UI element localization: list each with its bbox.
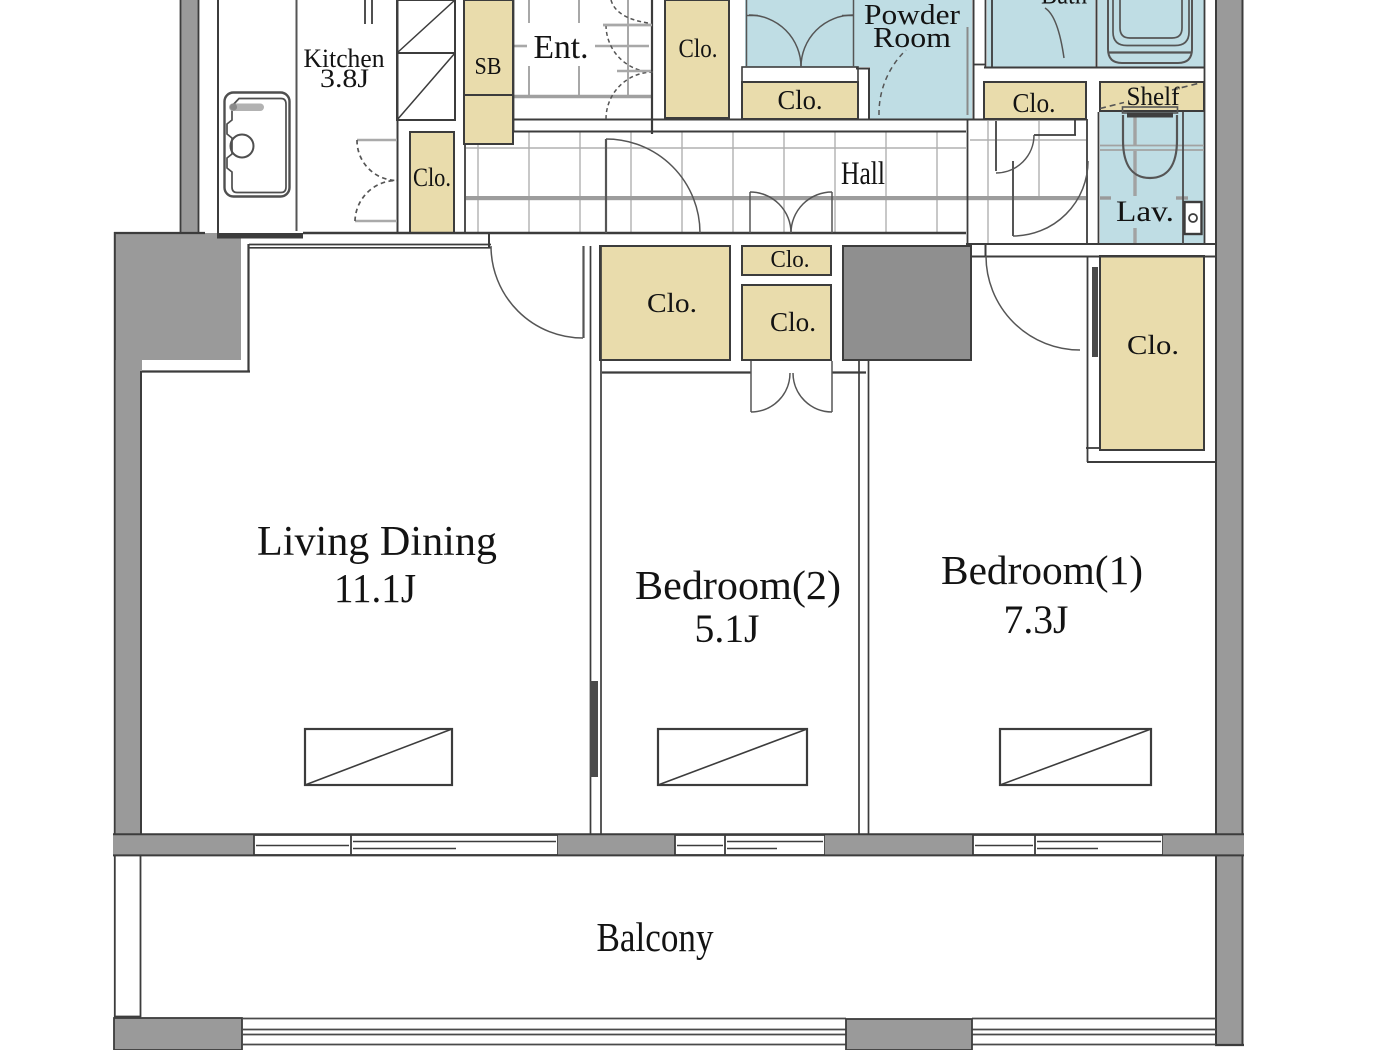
svg-text:Clo.: Clo. [679, 34, 718, 63]
svg-text:Room: Room [873, 23, 951, 54]
svg-text:Clo.: Clo. [647, 288, 697, 318]
svg-text:Clo.: Clo. [770, 307, 816, 337]
svg-text:Bedroom(1): Bedroom(1) [941, 547, 1143, 593]
svg-text:Clo.: Clo. [771, 247, 810, 273]
svg-text:Ent.: Ent. [534, 29, 589, 66]
svg-text:Lav.: Lav. [1116, 195, 1174, 228]
svg-text:Clo.: Clo. [778, 85, 823, 115]
svg-text:11.1J: 11.1J [334, 565, 416, 611]
svg-text:5.1J: 5.1J [695, 606, 760, 651]
svg-text:Clo.: Clo. [413, 163, 451, 192]
svg-text:Living Dining: Living Dining [257, 519, 497, 565]
svg-text:SB: SB [475, 54, 502, 80]
svg-text:Bedroom(2): Bedroom(2) [635, 562, 841, 608]
svg-text:7.3J: 7.3J [1004, 597, 1069, 642]
svg-text:Clo.: Clo. [1013, 88, 1056, 118]
svg-text:Clo.: Clo. [1127, 330, 1179, 360]
svg-text:Balcony: Balcony [597, 914, 714, 960]
svg-text:3.8J: 3.8J [320, 64, 369, 93]
svg-text:Shelf: Shelf [1127, 82, 1180, 111]
svg-text:Bath: Bath [1041, 0, 1087, 11]
svg-text:Hall: Hall [841, 156, 885, 192]
